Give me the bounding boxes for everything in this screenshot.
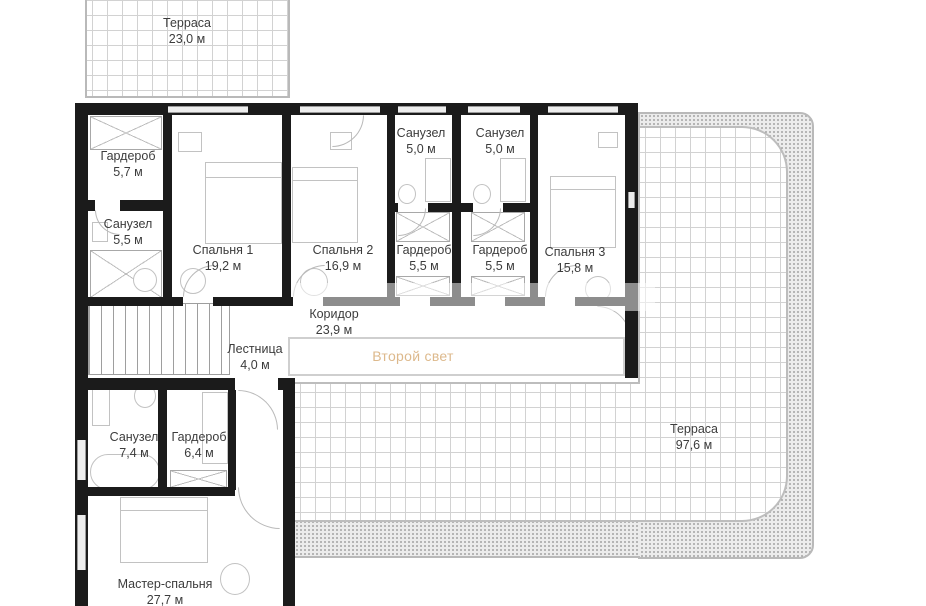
room-label-bedroom-1: Спальня 119,2 м bbox=[193, 242, 254, 275]
shower bbox=[425, 158, 451, 202]
door-arc bbox=[238, 390, 278, 430]
room-label-second-light: Второй свет bbox=[372, 347, 454, 365]
room-label-wardrobe-2: Гардероб5,5 м bbox=[397, 242, 452, 275]
wall-segment bbox=[75, 378, 235, 390]
armchair bbox=[220, 563, 250, 595]
wardrobe-cabinet bbox=[90, 116, 162, 150]
pillow bbox=[205, 162, 282, 178]
pillow bbox=[550, 176, 616, 190]
room-label-bedroom-3: Спальня 315,8 м bbox=[545, 244, 606, 277]
window bbox=[77, 440, 86, 480]
wall-segment bbox=[228, 390, 236, 490]
window bbox=[628, 192, 635, 208]
door-arc bbox=[238, 487, 280, 529]
second-light-opening bbox=[288, 337, 625, 376]
pillow bbox=[120, 497, 208, 511]
room-label-wardrobe-1: Гардероб5,7 м bbox=[101, 148, 156, 181]
terrace-bottom-paving-band bbox=[295, 520, 640, 558]
terrace-right-tiles-vertical bbox=[640, 126, 788, 522]
room-label-wardrobe-3: Гардероб5,5 м bbox=[473, 242, 528, 275]
floor-plan: Терраса23,0 м Гардероб5,7 м Санузел5,5 м… bbox=[0, 0, 926, 606]
room-label-bath-3: Санузел5,0 м bbox=[476, 125, 525, 158]
wall-segment bbox=[282, 115, 291, 302]
window bbox=[548, 106, 618, 113]
wall-segment bbox=[75, 200, 95, 211]
room-label-terrace-right: Терраса97,6 м bbox=[670, 421, 718, 454]
wardrobe-cabinet bbox=[170, 470, 227, 488]
wall-segment bbox=[283, 378, 295, 606]
room-label-corridor: Коридор23,9 м bbox=[309, 306, 358, 339]
room-label-bedroom-2: Спальня 216,9 м bbox=[313, 242, 374, 275]
wall-segment bbox=[88, 487, 235, 496]
room-label-stairs: Лестница4,0 м bbox=[227, 341, 282, 374]
room-label-bath-4: Санузел7,4 м bbox=[110, 429, 159, 462]
window bbox=[77, 515, 86, 570]
side-table bbox=[178, 132, 202, 152]
wall-segment bbox=[158, 390, 167, 490]
toilet bbox=[473, 184, 491, 204]
room-label-master-bedroom: Мастер-спальня27,7 м bbox=[118, 576, 213, 606]
window bbox=[300, 106, 380, 113]
wall-segment bbox=[503, 203, 538, 212]
wall-segment bbox=[75, 378, 88, 606]
wall-segment bbox=[625, 115, 638, 378]
wall-segment bbox=[213, 297, 293, 306]
wall-segment bbox=[120, 200, 172, 211]
window bbox=[398, 106, 446, 113]
terrace-right-tiles-horizontal bbox=[295, 382, 640, 522]
wall-segment bbox=[88, 297, 183, 306]
staircase bbox=[88, 303, 230, 375]
shower bbox=[500, 158, 526, 202]
room-label-terrace-top: Терраса23,0 м bbox=[163, 15, 211, 48]
room-label-bath-2: Санузел5,0 м bbox=[397, 125, 446, 158]
door-arc bbox=[332, 115, 364, 147]
wall-segment bbox=[75, 103, 88, 378]
wall-segment bbox=[428, 203, 473, 212]
toilet bbox=[133, 268, 157, 292]
window bbox=[468, 106, 520, 113]
window bbox=[168, 106, 248, 113]
pillow bbox=[292, 167, 358, 181]
wall-segment bbox=[387, 203, 398, 212]
room-label-wardrobe-4: Гардероб6,4 м bbox=[172, 429, 227, 462]
toilet bbox=[398, 184, 416, 204]
room-label-bath-1: Санузел5,5 м bbox=[104, 216, 153, 249]
side-table bbox=[598, 132, 618, 148]
